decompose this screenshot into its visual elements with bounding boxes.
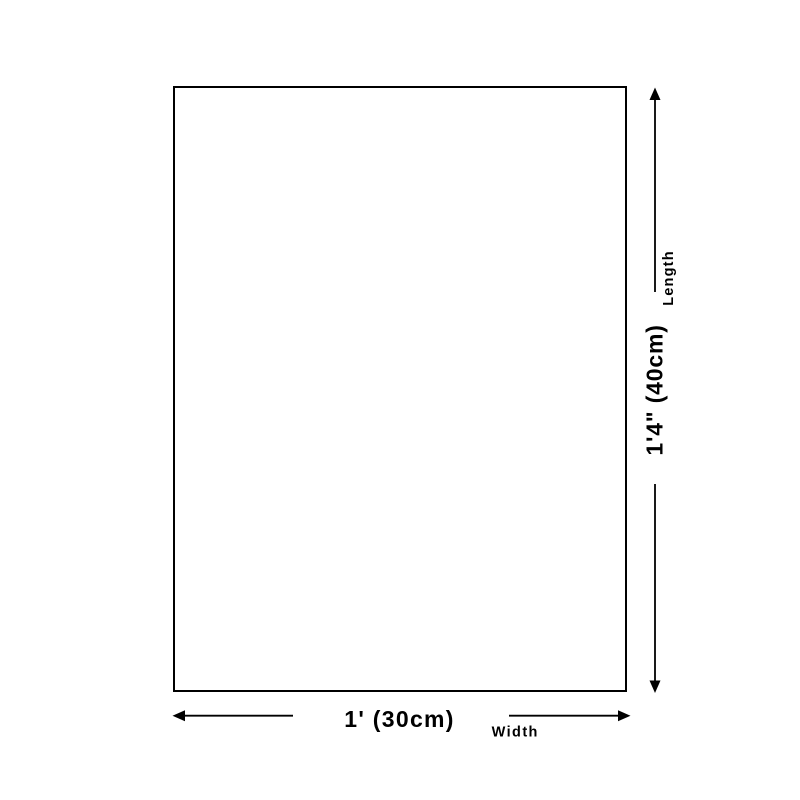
svg-text:1'4" (40cm): 1'4" (40cm) (641, 324, 667, 455)
svg-text:1' (30cm): 1' (30cm) (344, 706, 455, 732)
svg-text:Length: Length (661, 250, 677, 306)
svg-text:Width: Width (492, 725, 539, 741)
